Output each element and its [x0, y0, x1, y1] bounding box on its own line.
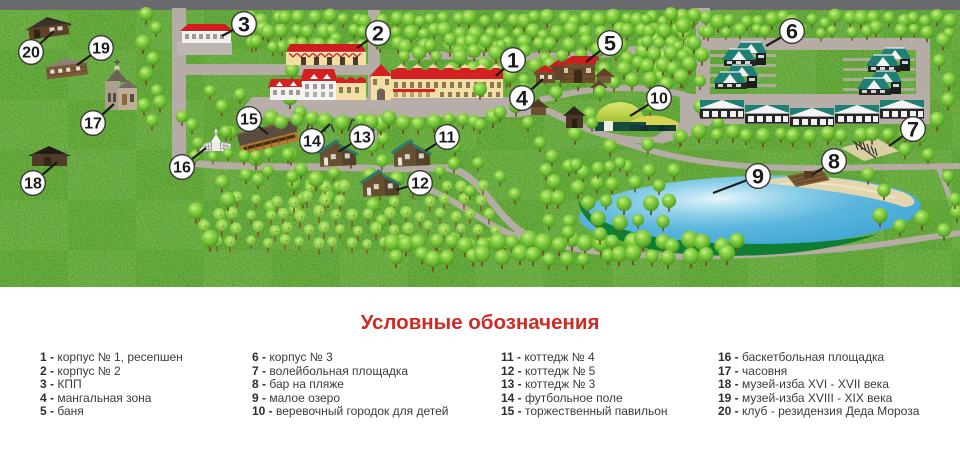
svg-text:4: 4: [516, 87, 528, 111]
svg-text:1: 1: [507, 49, 519, 73]
svg-text:9: 9: [752, 165, 764, 189]
svg-text:10: 10: [650, 91, 668, 108]
svg-text:7: 7: [907, 118, 919, 142]
svg-text:18: 18: [24, 176, 42, 193]
svg-text:15: 15: [240, 112, 258, 129]
svg-text:11: 11: [439, 130, 456, 147]
svg-text:20: 20: [22, 45, 40, 62]
svg-text:5: 5: [604, 32, 616, 56]
svg-text:16: 16: [173, 160, 191, 177]
svg-text:8: 8: [828, 150, 840, 174]
svg-text:12: 12: [411, 176, 429, 193]
svg-text:3: 3: [238, 13, 250, 37]
svg-text:14: 14: [303, 134, 321, 151]
svg-text:6: 6: [786, 20, 798, 44]
svg-text:17: 17: [84, 116, 102, 133]
svg-text:19: 19: [92, 41, 110, 58]
svg-text:2: 2: [372, 22, 384, 46]
svg-text:13: 13: [353, 130, 371, 147]
